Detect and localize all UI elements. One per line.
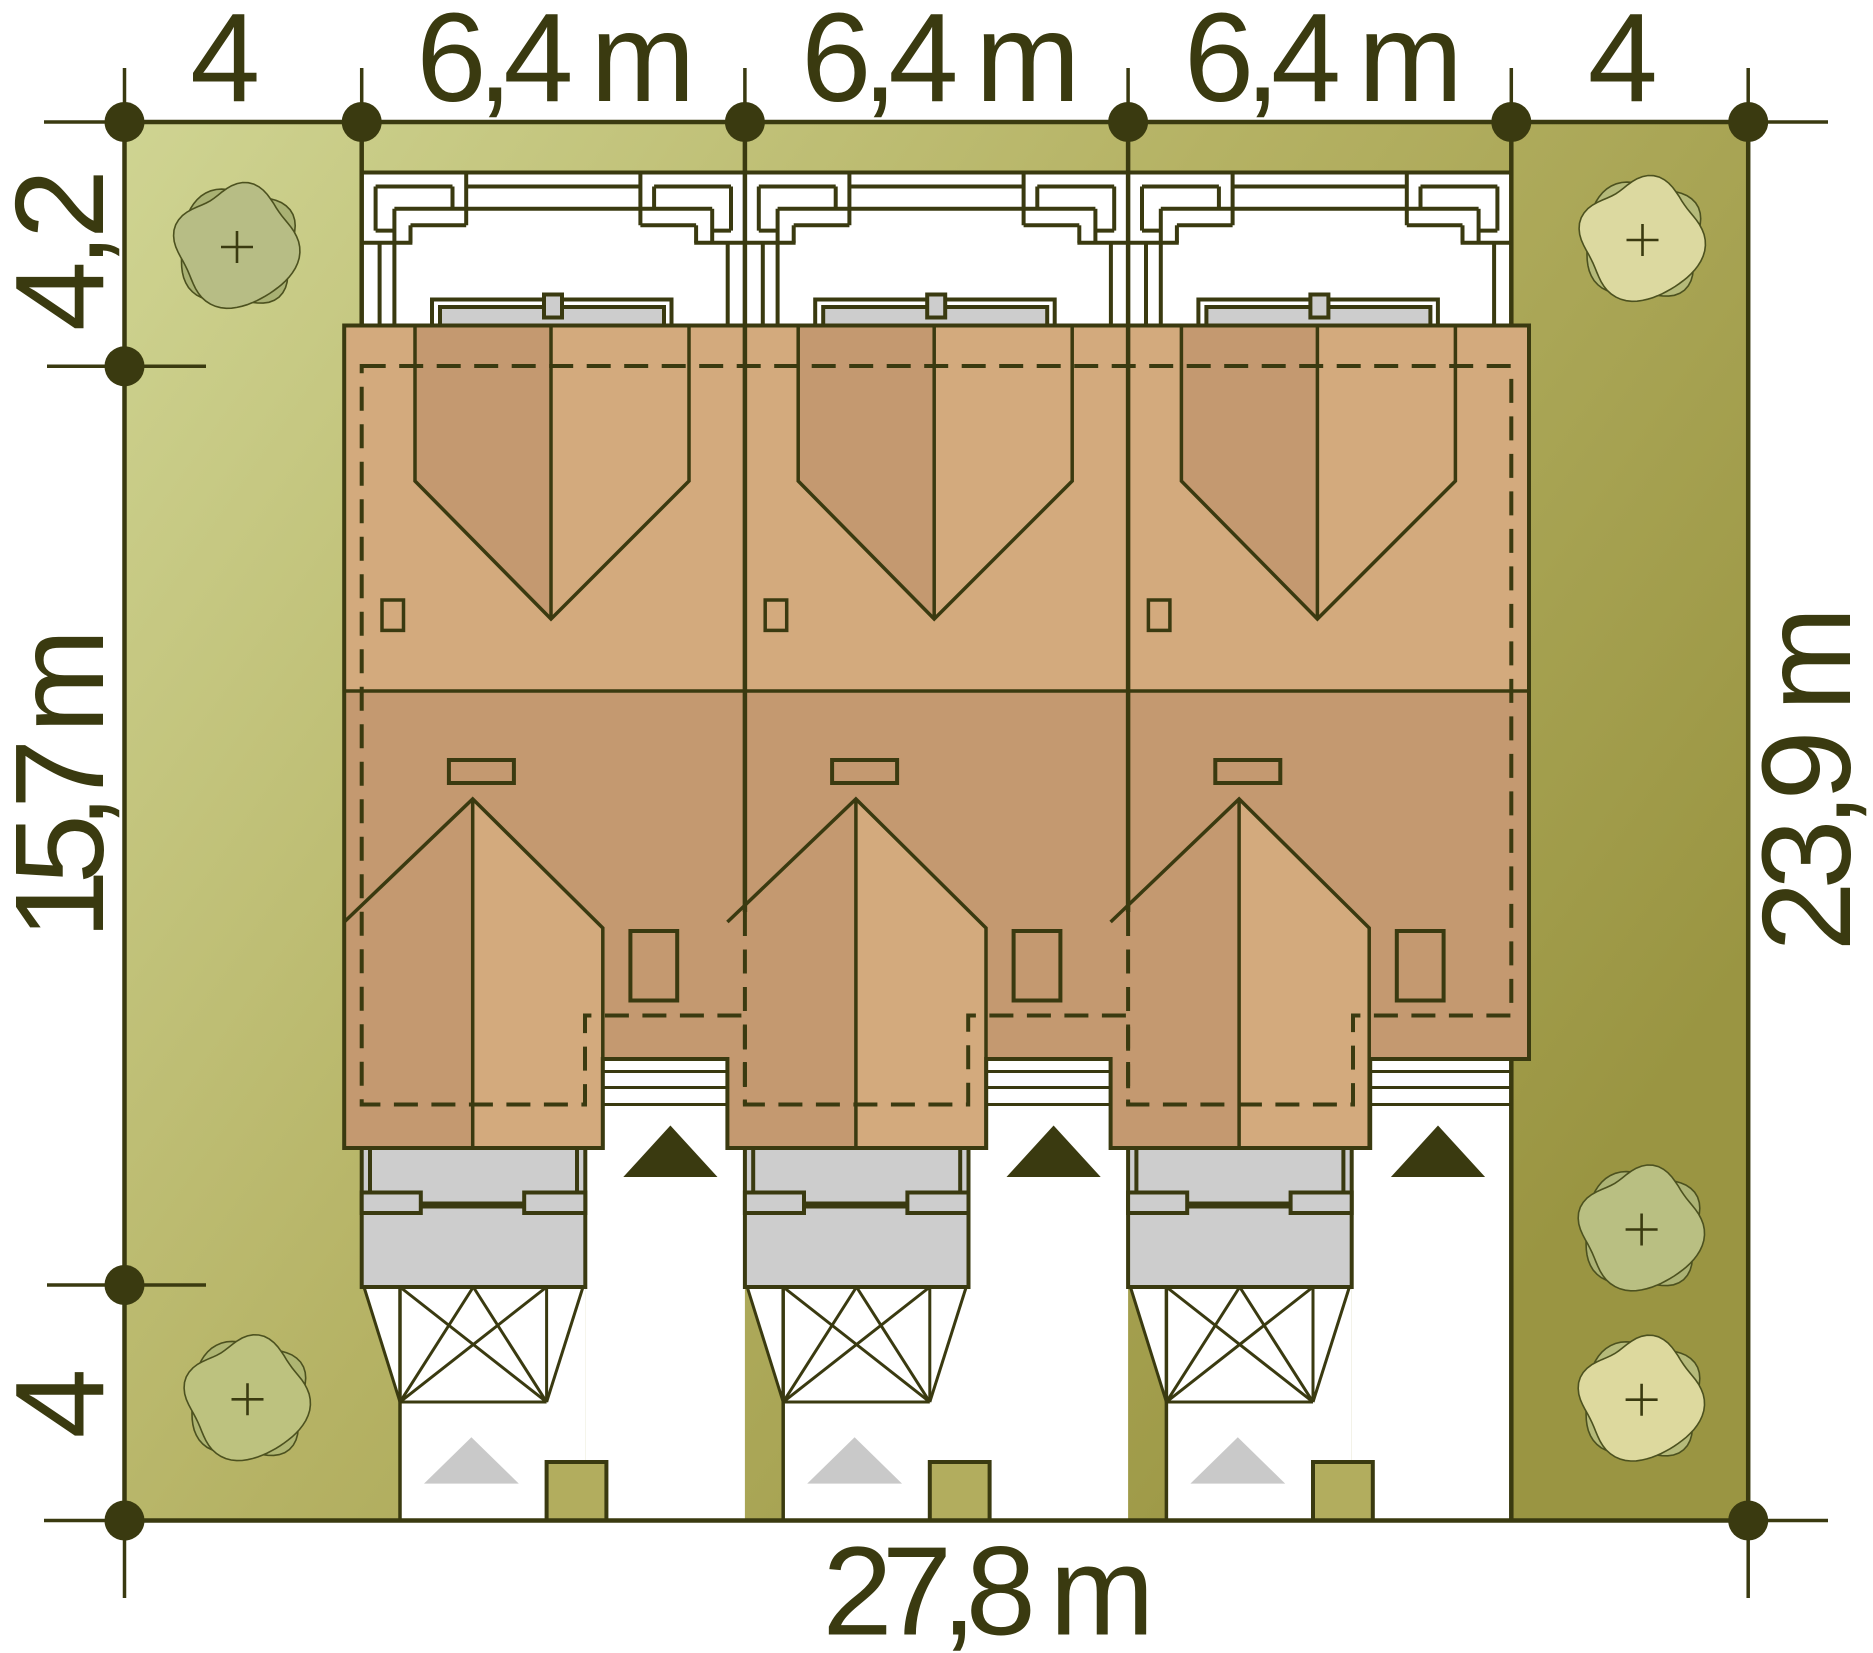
svg-text:4: 4 — [190, 0, 260, 128]
svg-text:23,9 m: 23,9 m — [1736, 607, 1873, 952]
svg-text:4: 4 — [1588, 0, 1658, 128]
svg-text:27,8 m: 27,8 m — [823, 1521, 1155, 1653]
svg-text:4: 4 — [0, 1368, 130, 1438]
svg-text:6,4 m: 6,4 m — [1184, 0, 1463, 128]
svg-text:6,4 m: 6,4 m — [801, 0, 1080, 128]
svg-text:6,4 m: 6,4 m — [416, 0, 695, 128]
svg-text:15,7 m: 15,7 m — [0, 629, 130, 940]
svg-text:4,2: 4,2 — [0, 169, 130, 331]
